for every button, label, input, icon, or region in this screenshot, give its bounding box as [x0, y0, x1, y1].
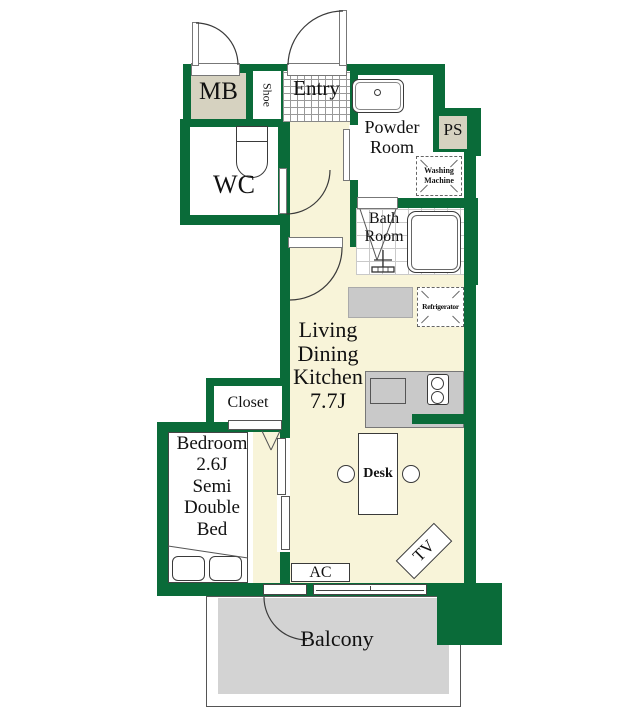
ldk-label: Living Dining Kitchen 7.7J: [286, 318, 370, 412]
chair-left-icon: [337, 465, 355, 483]
mb-door-leaf: [192, 22, 199, 66]
balcony-window: [313, 584, 427, 595]
corner-tick: [420, 184, 428, 192]
kitchen-sink-icon: [370, 378, 406, 404]
ac-label: AC: [309, 564, 331, 582]
balcony-label: Balcony: [277, 627, 397, 651]
washing-machine-box: Washing Machine: [416, 156, 462, 196]
sliding-door-panel-2: [281, 496, 290, 550]
bath-door-gap: [357, 197, 398, 209]
entry-step-line: [290, 121, 350, 122]
wall-right: [464, 198, 476, 596]
toilet-tank-icon: [236, 126, 268, 142]
corner-tick: [452, 291, 460, 299]
stove-burner-icon: [431, 391, 444, 404]
sliding-door-panel-1: [277, 438, 286, 495]
ac-unit: AC: [291, 563, 350, 582]
refrigerator-box: Refrigerator: [417, 287, 464, 327]
closet-door-bar: [228, 420, 282, 430]
corner-tick: [452, 315, 460, 323]
floor-plan: Washing Machine Refrigerator Desk TV AC: [0, 0, 640, 720]
corner-tick: [421, 315, 429, 323]
desk-label: Desk: [363, 466, 393, 481]
kitchen-cabinet: [348, 287, 413, 318]
balcony-door-leaf: [263, 584, 307, 595]
mb-label: MB: [191, 78, 246, 106]
washing-machine-label: Washing Machine: [424, 166, 454, 185]
shoe-label-box: Shoe: [253, 73, 281, 117]
shoe-label: Shoe: [260, 83, 273, 107]
bath-room-label: Bath Room: [348, 210, 420, 245]
sink-inner-rim: [355, 82, 401, 110]
corner-tick: [421, 291, 429, 299]
wc-door-leaf: [279, 168, 287, 214]
entry-label: Entry: [283, 77, 350, 100]
powder-door-panel: [343, 129, 350, 181]
threshold-entry: [287, 63, 347, 76]
pillow-icon: [172, 556, 205, 581]
faucet-icon: [374, 89, 381, 96]
mb-door-arc: [196, 23, 238, 65]
wall-kitchen-stub: [412, 414, 464, 424]
chair-right-icon: [402, 465, 420, 483]
powder-room-label: Powder Room: [350, 118, 434, 158]
corner-tick: [450, 184, 458, 192]
bedroom-label: Bedroom 2.6J Semi Double Bed: [160, 433, 264, 540]
closet-label: Closet: [214, 394, 282, 412]
floor-hall: [290, 122, 350, 252]
wall-pillar-top: [437, 583, 502, 645]
entry-door-leaf: [339, 10, 347, 66]
pillow-icon: [209, 556, 242, 581]
ldk-door-leaf: [288, 237, 343, 248]
desk: Desk: [358, 433, 398, 515]
corner-tick: [450, 160, 458, 168]
entry-door-arc: [288, 11, 343, 65]
wc-label: WC: [190, 171, 278, 200]
sink-icon: [352, 79, 404, 113]
ps-label: PS: [439, 121, 467, 140]
refrigerator-label: Refrigerator: [422, 303, 459, 311]
stove-burner-icon: [431, 377, 444, 390]
